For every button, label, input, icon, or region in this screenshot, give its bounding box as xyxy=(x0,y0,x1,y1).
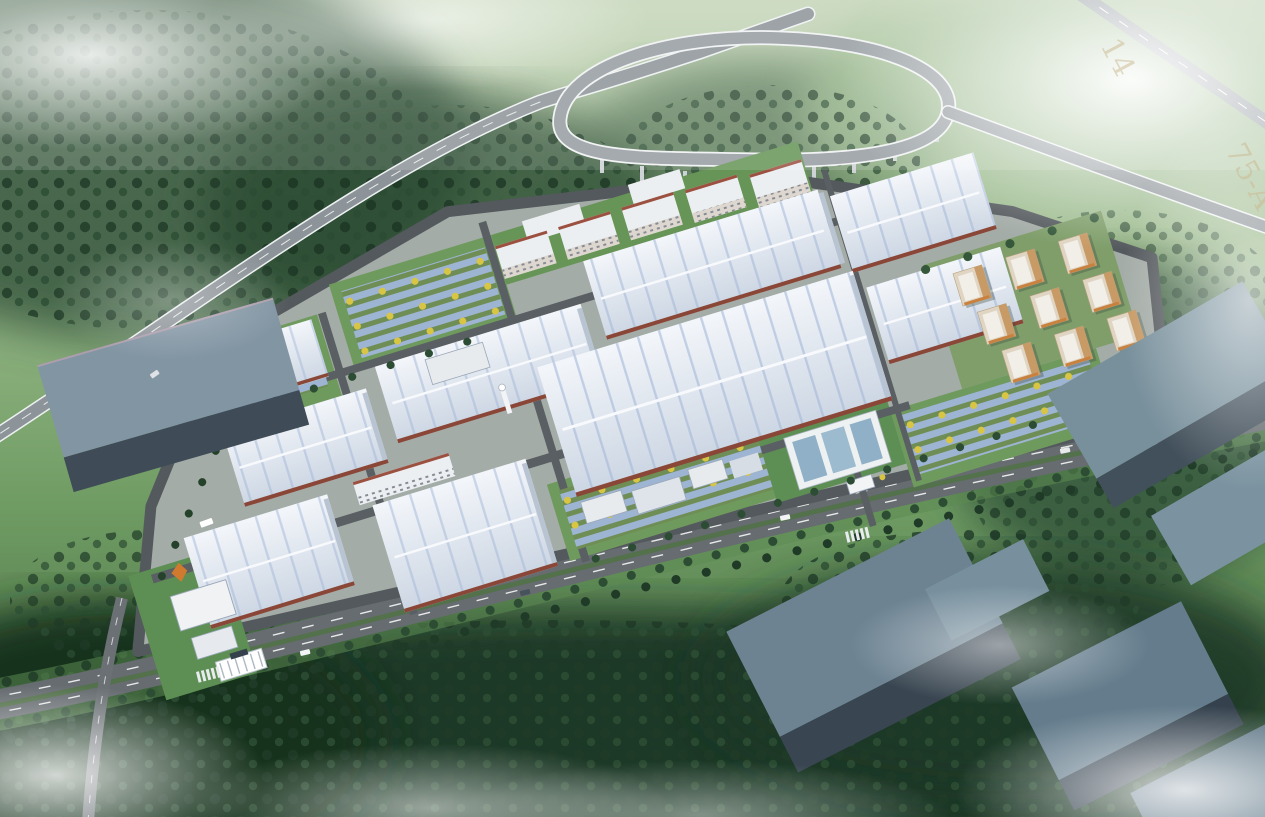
scene-canvas: 14 75-A xyxy=(0,0,1265,817)
aerial-rendering-image: 14 75-A xyxy=(0,0,1265,817)
